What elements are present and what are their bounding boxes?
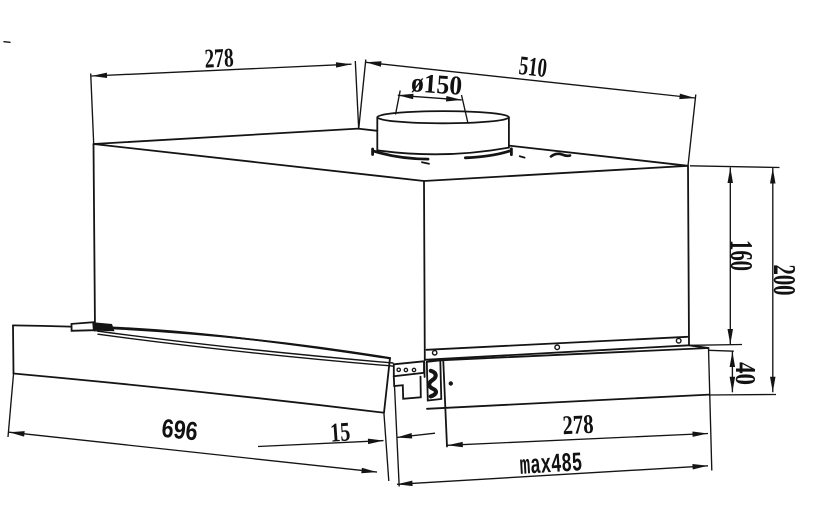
svg-text:40: 40 [729,362,760,385]
svg-text:160: 160 [724,240,760,271]
svg-text:200: 200 [767,265,803,296]
svg-text:510: 510 [517,50,548,83]
svg-text:278: 278 [562,409,594,441]
svg-text:15: 15 [329,416,351,447]
svg-text:278: 278 [204,42,234,73]
svg-text:max485: max485 [519,449,583,483]
svg-text:ø150: ø150 [410,67,463,101]
svg-text:696: 696 [160,413,199,447]
